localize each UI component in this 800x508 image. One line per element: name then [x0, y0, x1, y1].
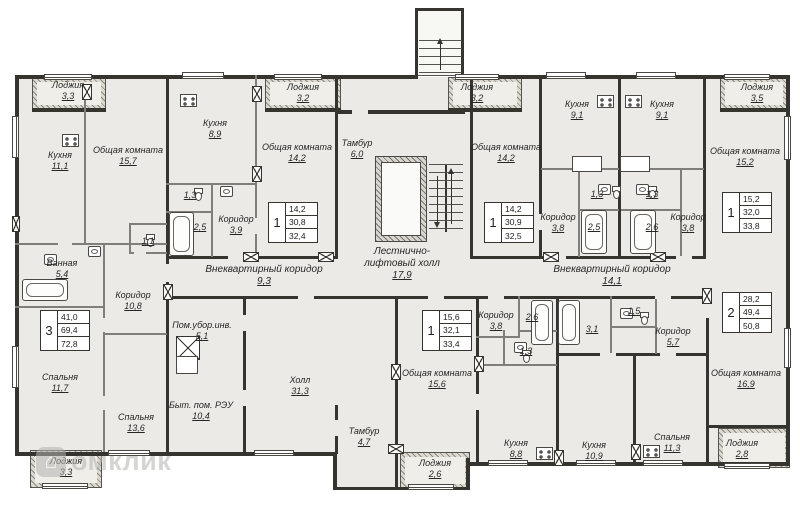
floor-plan: ⌂ омклик Лоджия3,3Кухня11,1Общая комната… — [0, 0, 800, 508]
room-name: Лоджия — [726, 438, 758, 449]
wall-segment — [556, 353, 708, 356]
stair-direction-arrow — [437, 38, 443, 44]
column-pylon — [252, 166, 262, 182]
room-label-e_loggia: Лоджия2,6 — [419, 458, 451, 480]
room-area: 2,6 — [429, 469, 442, 480]
apartment-total_with_loggia: 72,8 — [58, 337, 89, 350]
window — [254, 450, 294, 456]
room-area: 4,7 — [358, 437, 371, 448]
window — [724, 463, 770, 469]
column-pylon — [388, 444, 404, 454]
apartment-total_with_loggia: 32,4 — [286, 229, 317, 242]
room-area: 1,3 — [184, 190, 197, 201]
room-name: Лоджия — [52, 80, 84, 91]
room-area: 9,1 — [571, 110, 584, 121]
wall-segment — [415, 8, 464, 11]
wall-segment — [415, 8, 418, 78]
sink-icon — [88, 246, 101, 257]
room-label-d_loggia: Лоджия3,5 — [741, 82, 773, 104]
elevator-shaft — [375, 156, 427, 242]
apartment-total_area: 32,0 — [740, 206, 771, 219]
room-area: 10,8 — [124, 301, 142, 312]
room-name: Лестнично-лифтовый холл — [350, 246, 454, 270]
window — [636, 72, 676, 79]
room-name: Внеквартирный коридор — [553, 264, 670, 276]
room-label-a_kitchen: Кухня11,1 — [48, 150, 72, 172]
room-area: 1,5 — [628, 306, 641, 317]
room-label-f_bath: 3,1 — [586, 324, 599, 335]
room-name: Коридор — [115, 290, 150, 301]
stair-direction-arrow — [448, 168, 454, 174]
apartment-info-aptE: 115,632,133,4 — [422, 310, 472, 351]
apartment-number: 2 — [723, 293, 740, 332]
stove-icon — [597, 95, 614, 108]
room-label-a_loggia_top: Лоджия3,3 — [52, 80, 84, 102]
apartment-total_area: 30,9 — [502, 216, 533, 229]
room-name: Лоджия — [461, 82, 493, 93]
apartment-number: 1 — [269, 203, 286, 242]
room-area: 8,8 — [510, 449, 523, 460]
room-area: 13,6 — [127, 423, 145, 434]
room-label-f_kitchen: Кухня10,9 — [582, 440, 606, 462]
room-label-d_hall: Коридор3,8 — [670, 212, 705, 234]
room-label-corridor_left: Внеквартирный коридор9,3 — [205, 264, 322, 288]
door-opening — [243, 315, 246, 331]
partition-wall — [476, 364, 557, 366]
door-opening — [476, 394, 479, 410]
apartment-info-aptB: 114,230,832,4 — [268, 202, 318, 243]
bathtub-icon — [22, 279, 68, 301]
room-name: Коридор — [540, 212, 575, 223]
partition-wall — [15, 306, 104, 308]
door-opening — [103, 318, 105, 332]
column-pylon — [252, 86, 262, 102]
room-area: 3,9 — [230, 225, 243, 236]
wall-segment — [32, 108, 106, 112]
room-area: 17,9 — [392, 270, 411, 282]
door-opening — [352, 110, 368, 114]
window — [12, 346, 19, 388]
door-opening — [58, 243, 72, 245]
room-label-a_bed1: Спальня11,7 — [42, 372, 78, 394]
apartment-total_area: 30,8 — [286, 216, 317, 229]
cabinet — [572, 156, 602, 172]
stove-icon — [180, 94, 197, 107]
door-opening — [166, 264, 169, 282]
room-area: 1,3 — [646, 189, 659, 200]
room-area: 6,0 — [351, 149, 364, 160]
room-area: 1,3 — [520, 346, 533, 357]
room-name: Общая комната — [402, 368, 472, 379]
room-label-b_wc: 1,3 — [184, 190, 197, 201]
room-area: 15,2 — [736, 157, 754, 168]
partition-wall — [129, 223, 131, 254]
wall-segment — [265, 108, 341, 112]
room-area: 11,3 — [664, 443, 681, 454]
door-opening — [335, 420, 338, 436]
room-name: Тамбур — [349, 426, 380, 437]
apartment-living_area: 28,2 — [740, 293, 771, 306]
room-name: Общая комната — [93, 145, 163, 156]
room-name: Кухня — [203, 118, 227, 129]
partition-wall — [84, 90, 86, 243]
room-area: 3,8 — [682, 223, 695, 234]
wall-segment — [466, 458, 470, 490]
column-pylon — [391, 364, 401, 380]
room-name: Кухня — [582, 440, 606, 451]
door-opening — [600, 353, 616, 356]
column-pylon — [12, 216, 20, 232]
door-opening — [676, 256, 692, 259]
partition-wall — [610, 326, 656, 328]
room-label-e_wc: 1,3 — [520, 346, 533, 357]
window — [274, 74, 322, 80]
stair-direction-arrow — [437, 176, 438, 224]
column-pylon — [543, 252, 559, 262]
partition-wall — [610, 296, 612, 354]
room-name: Кухня — [504, 438, 528, 449]
apartment-info-aptF: 228,249,450,8 — [722, 292, 772, 333]
apartment-total_with_loggia: 33,4 — [440, 337, 471, 350]
stair-direction-arrow — [440, 44, 441, 70]
partition-wall — [476, 336, 520, 338]
room-area: 5,4 — [56, 269, 69, 280]
bathtub-icon — [169, 212, 194, 256]
room-label-b_bath: 2,5 — [194, 222, 207, 233]
column-pylon — [243, 252, 259, 262]
window — [546, 72, 586, 79]
room-name: Коридор — [670, 212, 705, 223]
apartment-number: 3 — [41, 311, 58, 350]
partition-wall — [103, 333, 167, 335]
room-name: Общая комната — [710, 146, 780, 157]
room-area: 2,6 — [526, 312, 539, 323]
door-opening — [298, 296, 314, 299]
room-label-f_wc: 1,5 — [628, 306, 641, 317]
room-label-b_kitchen: Кухня8,9 — [203, 118, 227, 140]
partition-wall — [211, 183, 213, 257]
window — [42, 483, 88, 489]
room-name: Кухня — [48, 150, 72, 161]
apartment-total_with_loggia: 32,5 — [502, 229, 533, 242]
partition-wall — [129, 223, 167, 225]
room-label-a_wc: 1,1 — [142, 236, 155, 247]
apartment-living_area: 15,6 — [440, 311, 471, 324]
column-pylon — [474, 356, 484, 372]
room-label-c_loggia: Лоджия3,2 — [461, 82, 493, 104]
room-area: 11,1 — [52, 161, 69, 172]
room-area: 5,1 — [196, 331, 209, 342]
room-label-a_bed2: Спальня13,6 — [118, 412, 154, 434]
stair-direction-arrow — [434, 222, 440, 228]
stove-icon — [625, 95, 642, 108]
room-name: Коридор — [655, 326, 690, 337]
room-name: Ванная — [47, 258, 78, 269]
toilet-icon — [612, 186, 621, 199]
room-name: Спальня — [654, 432, 690, 443]
room-area: 1,3 — [591, 189, 604, 200]
room-label-stair_hall: Лестнично-лифтовый холл17,9 — [350, 246, 454, 282]
apartment-total_area: 32,1 — [440, 324, 471, 337]
room-area: 31,3 — [291, 386, 309, 397]
room-name: Внеквартирный коридор — [205, 264, 322, 276]
room-area: 2,8 — [736, 449, 749, 460]
room-area: 2,5 — [588, 222, 601, 233]
apartment-number: 1 — [485, 203, 502, 242]
window — [784, 116, 791, 160]
door-opening — [243, 390, 246, 406]
window — [643, 460, 683, 466]
room-label-a_living: Общая комната15,7 — [93, 145, 163, 167]
room-label-e_kitchen: Кухня8,8 — [504, 438, 528, 460]
window — [784, 328, 791, 368]
apartment-info-aptD: 115,232,033,8 — [722, 192, 772, 233]
room-name: Лоджия — [287, 82, 319, 93]
room-area: 11,7 — [52, 383, 69, 394]
wall-segment — [333, 452, 337, 490]
room-name: Лоджия — [741, 82, 773, 93]
door-opening — [660, 353, 676, 356]
room-name: Быт. пом. РЭУ — [169, 400, 233, 411]
column-pylon — [318, 252, 334, 262]
room-label-b_loggia: Лоджия3,2 — [287, 82, 319, 104]
room-label-d_wc: 1,3 — [646, 189, 659, 200]
apartment-living_area: 14,2 — [286, 203, 317, 216]
sink-icon — [220, 186, 233, 197]
room-area: 14,1 — [602, 276, 621, 288]
room-label-reu: Быт. пом. РЭУ10,4 — [169, 400, 233, 422]
window — [182, 72, 224, 79]
room-area: 9,1 — [656, 110, 669, 121]
room-name: Спальня — [42, 372, 78, 383]
room-area: 1,1 — [142, 236, 155, 247]
column-pylon — [631, 444, 641, 460]
room-area: 3,2 — [297, 93, 310, 104]
room-area: 3,1 — [586, 324, 599, 335]
bathtub-icon — [558, 300, 580, 345]
door-opening — [655, 296, 671, 299]
column-pylon — [702, 288, 712, 304]
wall-segment — [395, 296, 398, 489]
room-area: 2,5 — [194, 222, 207, 233]
room-label-b_hall: Коридор3,9 — [218, 214, 253, 236]
room-name: Холл — [290, 375, 311, 386]
room-name: Пом.убор.инв. — [172, 320, 232, 331]
apartment-total_with_loggia: 50,8 — [740, 319, 771, 332]
cabinet — [176, 356, 198, 374]
room-label-c_kitchen: Кухня9,1 — [565, 99, 589, 121]
room-label-f_living: Общая комната16,9 — [711, 368, 781, 390]
room-name: Тамбур — [342, 138, 373, 149]
apartment-number: 1 — [423, 311, 440, 350]
room-label-d_kitchen: Кухня9,1 — [650, 99, 674, 121]
room-name: Коридор — [478, 310, 513, 321]
stair-direction-arrow — [451, 172, 452, 224]
room-label-e_living: Общая комната15,6 — [402, 368, 472, 390]
wall-segment — [335, 75, 338, 258]
toilet-icon — [640, 312, 649, 325]
room-area: 3,8 — [552, 223, 565, 234]
room-area: 3,3 — [60, 467, 73, 478]
cabinet — [620, 156, 650, 172]
room-area: 15,7 — [119, 156, 137, 167]
column-pylon — [163, 284, 173, 300]
room-area: 3,8 — [490, 321, 503, 332]
room-label-a_bath: Ванная5,4 — [47, 258, 78, 280]
room-area: 16,9 — [737, 379, 755, 390]
room-area: 9,3 — [257, 276, 271, 288]
stove-icon — [62, 134, 79, 147]
room-name: Кухня — [565, 99, 589, 110]
window — [488, 460, 528, 466]
room-label-d_living: Общая комната15,2 — [710, 146, 780, 168]
partition-wall — [503, 330, 505, 366]
room-area: 15,6 — [428, 379, 446, 390]
room-label-hall_big: Холл31,3 — [290, 375, 311, 397]
room-label-f_bed: Спальня11,3 — [654, 432, 690, 454]
room-area: 5,7 — [667, 337, 680, 348]
wall-segment — [470, 256, 706, 259]
room-label-b_living: Общая комната14,2 — [262, 142, 332, 164]
window — [455, 74, 499, 80]
door-opening — [428, 296, 444, 299]
apartment-total_with_loggia: 33,8 — [740, 219, 771, 232]
room-name: Коридор — [218, 214, 253, 225]
apartment-living_area: 41,0 — [58, 311, 89, 324]
apartment-number: 1 — [723, 193, 740, 232]
door-opening — [706, 302, 709, 318]
door-opening — [103, 396, 105, 410]
room-name: Общая комната — [711, 368, 781, 379]
apartment-total_area: 49,4 — [740, 306, 771, 319]
wall-segment — [166, 296, 470, 299]
room-name: Спальня — [118, 412, 154, 423]
room-label-c_hall: Коридор3,8 — [540, 212, 575, 234]
room-name: Лоджия — [50, 456, 82, 467]
room-label-f_hall: Коридор5,7 — [655, 326, 690, 348]
room-name: Общая комната — [471, 142, 541, 153]
room-name: Кухня — [650, 99, 674, 110]
room-area: 8,9 — [209, 129, 222, 140]
room-area: 14,2 — [497, 153, 515, 164]
window — [408, 484, 454, 490]
room-label-a_loggia_bottom: Лоджия3,3 — [50, 456, 82, 478]
window — [108, 450, 150, 456]
room-area: 10,9 — [585, 451, 603, 462]
door-opening — [134, 252, 146, 254]
stove-icon — [536, 447, 553, 460]
wall-segment — [720, 108, 788, 112]
room-area: 3,3 — [62, 91, 75, 102]
window — [12, 116, 19, 158]
room-label-e_hall: Коридор3,8 — [478, 310, 513, 332]
apartment-living_area: 14,2 — [502, 203, 533, 216]
room-area: 14,2 — [288, 153, 306, 164]
room-label-tambur_small: Тамбур4,7 — [349, 426, 380, 448]
room-label-corridor_right: Внеквартирный коридор14,1 — [553, 264, 670, 288]
column-pylon — [554, 450, 564, 466]
partition-wall — [578, 168, 580, 257]
room-area: 3,5 — [751, 93, 764, 104]
apartment-living_area: 15,2 — [740, 193, 771, 206]
room-label-c_living: Общая комната14,2 — [471, 142, 541, 164]
room-name: Лоджия — [419, 458, 451, 469]
room-area: 3,2 — [471, 93, 484, 104]
room-label-cleaning: Пом.убор.инв.5,1 — [172, 320, 232, 342]
apartment-total_area: 69,4 — [58, 324, 89, 337]
room-label-c_wc: 1,3 — [591, 189, 604, 200]
room-label-a_hall: Коридор10,8 — [115, 290, 150, 312]
partition-wall — [103, 243, 105, 452]
room-label-c_bath: 2,5 — [588, 222, 601, 233]
apartment-info-aptC: 114,230,932,5 — [484, 202, 534, 243]
apartment-info-apt3: 341,069,472,8 — [40, 310, 90, 351]
room-label-e_bath: 2,6 — [526, 312, 539, 323]
window — [724, 74, 770, 80]
room-area: 2,6 — [646, 222, 659, 233]
room-area: 10,4 — [192, 411, 210, 422]
door-opening — [255, 218, 257, 234]
wall-segment — [706, 425, 790, 428]
room-name: Общая комната — [262, 142, 332, 153]
room-label-tambur_main: Тамбур6,0 — [342, 138, 373, 160]
door-opening — [488, 296, 504, 299]
room-label-d_bath: 2,6 — [646, 222, 659, 233]
room-label-f_loggia: Лоджия2,8 — [726, 438, 758, 460]
